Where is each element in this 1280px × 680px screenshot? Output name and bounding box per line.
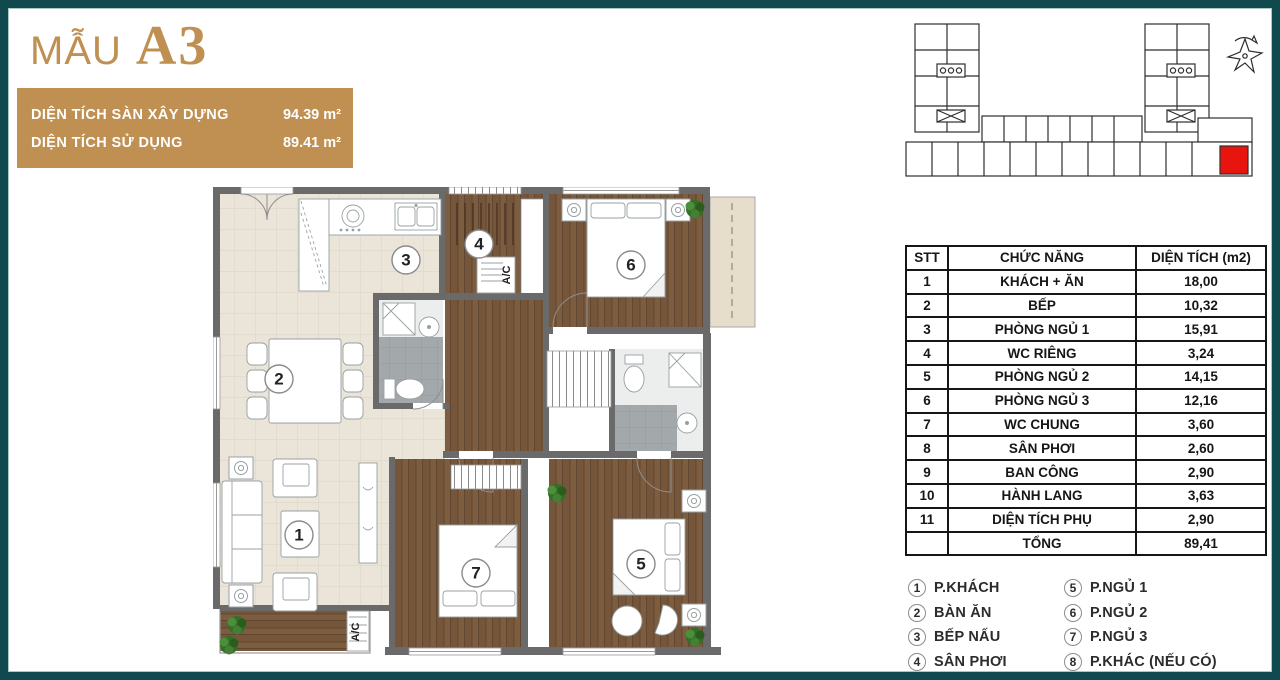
table-row: 5PHÒNG NGỦ 214,15: [906, 365, 1266, 389]
legend-item: 5P.NGỦ 1: [1064, 576, 1217, 601]
room-marker-2: 2: [265, 365, 293, 393]
area-summary-panel: DIỆN TÍCH SÀN XÂY DỰNG 94.39 m² DIỆN TÍC…: [17, 88, 353, 168]
floor-plan: A/C: [213, 187, 763, 665]
legend-item: 1P.KHÁCH: [908, 576, 1064, 601]
room-marker-5: 5: [627, 550, 655, 578]
table-row: 3PHÒNG NGỦ 115,91: [906, 317, 1266, 341]
table-row: 10HÀNH LANG3,63: [906, 484, 1266, 508]
table-header-row: STT CHỨC NĂNG DIỆN TÍCH (m2): [906, 246, 1266, 270]
area-label: DIỆN TÍCH SÀN XÂY DỰNG: [31, 101, 229, 129]
svg-text:5: 5: [636, 555, 645, 574]
table-total-row: TỔNG 89,41: [906, 532, 1266, 556]
bedroom-left: [439, 465, 521, 617]
left-tower: [915, 24, 979, 132]
total-empty-cell: [906, 532, 948, 556]
room-marker-6: 6: [617, 251, 645, 279]
legend-item: 2BÀN ĂN: [908, 601, 1064, 626]
area-value: 89.41 m²: [283, 129, 341, 157]
ac-label: A/C: [350, 622, 362, 641]
table-row: 8SÂN PHƠI2,60: [906, 436, 1266, 460]
legend-item: 3BẾP NẤU: [908, 625, 1064, 650]
legend-number-badge: 4: [908, 653, 926, 671]
ac-unit: A/C: [477, 257, 515, 293]
legend-number-badge: 6: [1064, 604, 1082, 622]
table-row: 7WC CHUNG3,60: [906, 413, 1266, 437]
highlighted-unit: [1220, 146, 1248, 174]
svg-text:6: 6: [626, 256, 635, 275]
room-marker-3: 3: [392, 246, 420, 274]
sink-icon: [395, 203, 437, 230]
room-marker-1: 1: [285, 521, 313, 549]
ac-label: A/C: [501, 265, 513, 284]
total-value: 89,41: [1136, 532, 1266, 556]
table-row: 9BAN CÔNG2,90: [906, 460, 1266, 484]
legend-item: 6P.NGỦ 2: [1064, 601, 1217, 626]
compass-icon: [1228, 36, 1262, 72]
area-row-construction: DIỆN TÍCH SÀN XÂY DỰNG 94.39 m²: [31, 101, 341, 129]
svg-text:2: 2: [274, 370, 283, 389]
brochure-page: MẪU A3 DIỆN TÍCH SÀN XÂY DỰNG 94.39 m² D…: [0, 0, 1280, 680]
right-tower: [1145, 24, 1209, 132]
col-header-function: CHỨC NĂNG: [948, 246, 1136, 270]
svg-text:7: 7: [471, 564, 480, 583]
room-legend: 1P.KHÁCH 2BÀN ĂN 3BẾP NẤU 4SÂN PHƠI 5P.N…: [908, 576, 1217, 674]
legend-number-badge: 2: [908, 604, 926, 622]
site-key-plan: [890, 16, 1270, 188]
table-row: 4WC RIÊNG3,24: [906, 341, 1266, 365]
total-label: TỔNG: [948, 532, 1136, 556]
legend-number-badge: 5: [1064, 579, 1082, 597]
svg-text:3: 3: [401, 251, 410, 270]
area-row-usable: DIỆN TÍCH SỬ DỤNG 89.41 m²: [31, 129, 341, 157]
legend-number-badge: 3: [908, 628, 926, 646]
room-marker-7: 7: [462, 559, 490, 587]
title-model: A3: [136, 14, 208, 78]
legend-item: 7P.NGỦ 3: [1064, 625, 1217, 650]
col-header-area: DIỆN TÍCH (m2): [1136, 246, 1266, 270]
area-label: DIỆN TÍCH SỬ DỤNG: [31, 129, 183, 157]
title-prefix: MẪU: [30, 29, 122, 74]
svg-text:4: 4: [474, 235, 484, 254]
legend-number-badge: 1: [908, 579, 926, 597]
legend-number-badge: 8: [1064, 653, 1082, 671]
dining-set: [247, 339, 363, 423]
room-marker-4: 4: [465, 230, 493, 258]
svg-text:1: 1: [294, 526, 303, 545]
table-row: 2BẾP10,32: [906, 294, 1266, 318]
page-title: MẪU A3: [30, 14, 208, 78]
table-row: 6PHÒNG NGỦ 312,16: [906, 389, 1266, 413]
legend-item: 8P.KHÁC (NẾU CÓ): [1064, 650, 1217, 675]
legend-item: 4SÂN PHƠI: [908, 650, 1064, 675]
table-row: 1KHÁCH + ĂN18,00: [906, 270, 1266, 294]
col-header-stt: STT: [906, 246, 948, 270]
table-row: 11DIỆN TÍCH PHỤ2,90: [906, 508, 1266, 532]
legend-number-badge: 7: [1064, 628, 1082, 646]
area-value: 94.39 m²: [283, 101, 341, 129]
area-table: STT CHỨC NĂNG DIỆN TÍCH (m2) 1KHÁCH + ĂN…: [905, 245, 1267, 556]
